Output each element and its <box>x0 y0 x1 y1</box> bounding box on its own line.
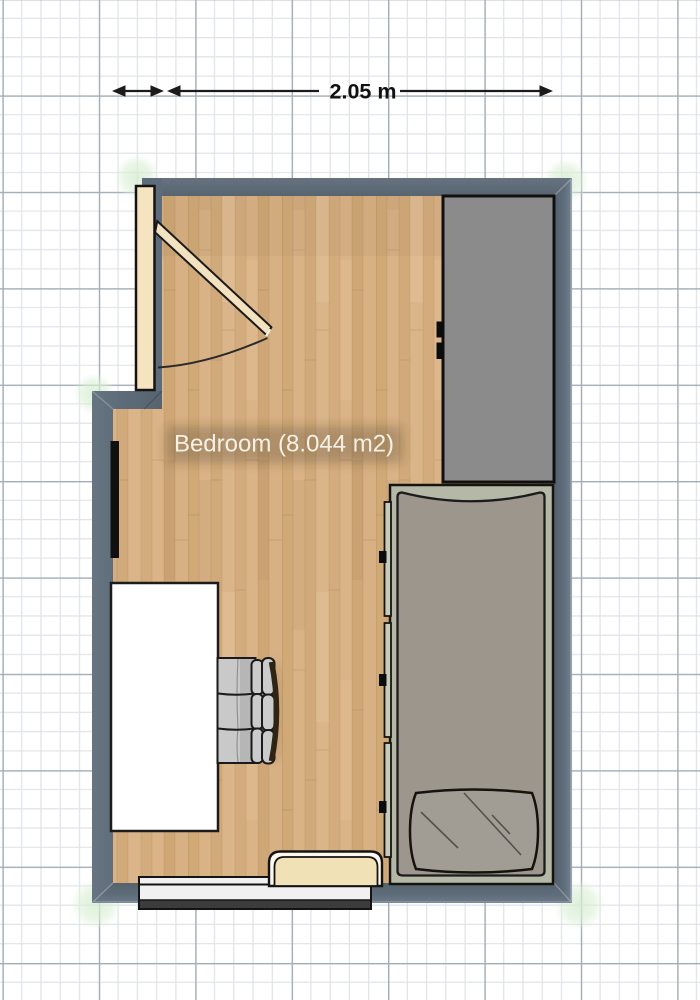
svg-text:2.05 m: 2.05 m <box>330 80 397 104</box>
svg-text:Bedroom (8.044 m2): Bedroom (8.044 m2) <box>174 431 394 458</box>
